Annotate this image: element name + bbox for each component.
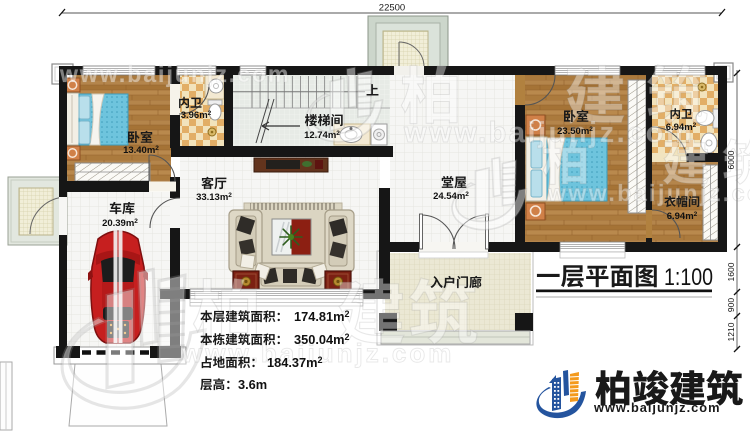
- svg-text:350.04m2: 350.04m2: [294, 332, 350, 347]
- svg-text:1600: 1600: [726, 262, 736, 281]
- svg-text:3.6m: 3.6m: [238, 377, 267, 392]
- svg-text:33.13m2: 33.13m2: [196, 192, 232, 203]
- svg-text:3.96m2: 3.96m2: [181, 110, 212, 121]
- svg-text:174.81m2: 174.81m2: [294, 309, 350, 324]
- svg-text:www.baijunjz.com: www.baijunjz.com: [59, 61, 291, 87]
- svg-text:24.54m2: 24.54m2: [433, 191, 469, 202]
- svg-text:13.40m2: 13.40m2: [123, 145, 159, 156]
- svg-text:20.39m2: 20.39m2: [102, 218, 138, 229]
- svg-text:6000: 6000: [726, 150, 736, 169]
- svg-text:22500: 22500: [379, 3, 405, 14]
- svg-text:www.baijunjz.com: www.baijunjz.com: [547, 180, 750, 206]
- svg-text:900: 900: [726, 298, 736, 312]
- svg-text:184.37m2: 184.37m2: [267, 355, 323, 370]
- svg-text:6.94m2: 6.94m2: [666, 122, 697, 133]
- svg-text:www.baijunjz.com: www.baijunjz.com: [593, 400, 720, 415]
- svg-text:6.94m2: 6.94m2: [667, 211, 698, 222]
- svg-text:www.baijunjz.com: www.baijunjz.com: [403, 117, 694, 149]
- svg-text:12.74m2: 12.74m2: [304, 130, 340, 141]
- svg-text:23.50m2: 23.50m2: [557, 126, 593, 137]
- svg-text:1:100: 1:100: [664, 263, 713, 291]
- svg-text:1210: 1210: [726, 322, 736, 341]
